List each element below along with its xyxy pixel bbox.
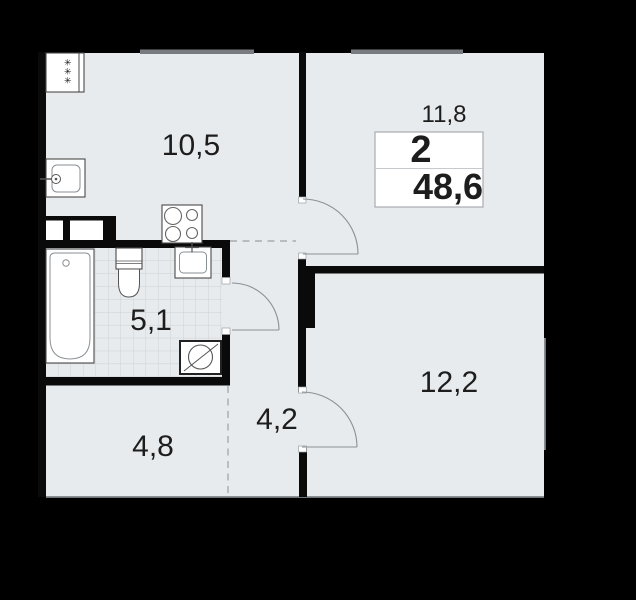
apartment-total-area: 48,6 [413,166,483,207]
kitchen-sink-icon [40,159,85,197]
washing-machine-icon [180,341,221,374]
bathroom-sink-icon [175,242,211,278]
floor-plan: ✳✳✳ 2 4 [0,0,636,600]
area-label-bedroom: 11,8 [422,101,467,128]
area-label-hallway: 4,2 [256,403,298,436]
bedroom-window [351,50,463,55]
apartment-info-box: 2 48,6 [375,129,483,207]
stove-icon [162,205,202,243]
kitchen-window [140,50,254,55]
area-label-kitchen: 10,5 [162,129,220,162]
area-label-room-second: 12,2 [420,366,478,399]
bathtub-icon [46,249,94,363]
right-cut-line [544,338,546,450]
ventilation-shaft [46,216,116,240]
fridge-symbol: ✳✳✳ [63,58,73,85]
area-label-entry: 4,8 [132,430,174,463]
area-label-bathroom: 5,1 [130,304,172,337]
toilet-icon [116,248,142,297]
fridge-icon: ✳✳✳ [46,53,84,92]
bottom-cut-line [46,496,544,498]
apartment-rooms-count: 2 [410,129,431,171]
